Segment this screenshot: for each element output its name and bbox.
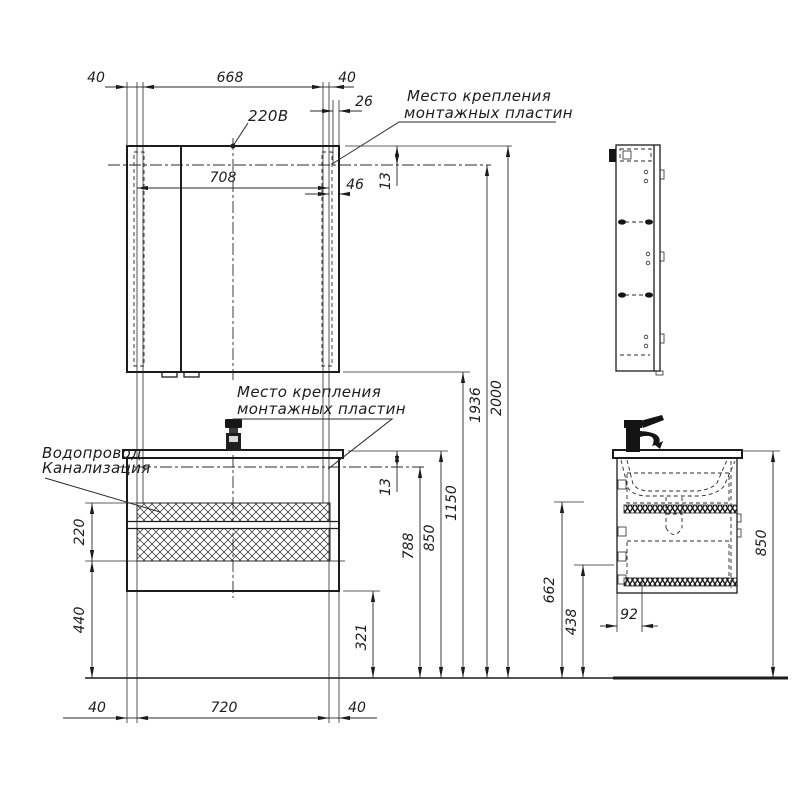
- dim-40-top-right: 40: [338, 70, 356, 86]
- dim-220: 220: [72, 519, 88, 546]
- dim-92: 92: [620, 607, 638, 623]
- dimensions-left: 220 440: [72, 503, 92, 678]
- wall-bracket: [609, 149, 616, 162]
- dim-40-bottom-left: 40: [88, 700, 106, 716]
- drawing-canvas: 40 668 40 26 708 46 40 720 40 220 440 13…: [0, 0, 800, 800]
- dimensions-top: 40 668 40 26 708 46: [87, 70, 373, 194]
- dim-13-mirror: 13: [378, 172, 394, 190]
- dim-321: 321: [354, 624, 370, 651]
- dimensions-bottom: 40 720 40: [63, 700, 377, 718]
- dim-46: 46: [346, 177, 364, 193]
- dim-850: 850: [422, 525, 438, 552]
- dim-788: 788: [401, 533, 417, 560]
- dim-1936: 1936: [468, 387, 484, 423]
- dim-708: 708: [210, 170, 237, 186]
- dim-850-side: 850: [754, 530, 770, 557]
- dim-1150: 1150: [444, 485, 460, 521]
- mounting-zone-hatch: [137, 503, 330, 561]
- dim-2000: 2000: [489, 380, 505, 416]
- dim-26: 26: [355, 94, 373, 110]
- sewerage-label: Канализация: [42, 459, 151, 477]
- dim-40-bottom-right: 40: [348, 700, 366, 716]
- drawer-rail: [624, 505, 737, 513]
- faucet-front: [225, 419, 242, 451]
- dimensions-side-view: 662 438 92 850: [542, 451, 773, 678]
- side-view-mirror-cabinet: [609, 145, 664, 375]
- mounting-label-mid-line1: Место крепления: [237, 383, 381, 401]
- dim-662: 662: [542, 577, 558, 604]
- mounting-plate-left: [134, 152, 144, 366]
- dim-13-vanity: 13: [378, 478, 394, 496]
- drawer-rail: [624, 578, 737, 586]
- mounting-plate-right: [322, 152, 332, 366]
- power-label: 220В: [248, 107, 289, 125]
- installation-drawing: 40 668 40 26 708 46 40 720 40 220 440 13…: [0, 0, 800, 800]
- dim-40-top-left: 40: [87, 70, 105, 86]
- mounting-leader-middle: [233, 419, 392, 469]
- mounting-label-mid-line2: монтажных пластин: [237, 400, 406, 418]
- faucet-side: [624, 415, 664, 452]
- power-leader: [233, 123, 248, 146]
- drawer-upper: [627, 473, 729, 503]
- mounting-label-top-line1: Место крепления: [407, 87, 551, 105]
- dim-668: 668: [217, 70, 244, 86]
- dim-438: 438: [564, 609, 580, 636]
- mounting-leader-top: [332, 122, 556, 164]
- mounting-label-top-line2: монтажных пластин: [404, 104, 573, 122]
- callouts: 220В Место крепления монтажных пластин М…: [42, 87, 573, 512]
- dim-440: 440: [72, 607, 88, 634]
- vanity-body-side: [617, 458, 737, 593]
- drawer-lower: [627, 541, 729, 578]
- side-view-vanity: [613, 415, 780, 593]
- dim-720: 720: [211, 700, 238, 716]
